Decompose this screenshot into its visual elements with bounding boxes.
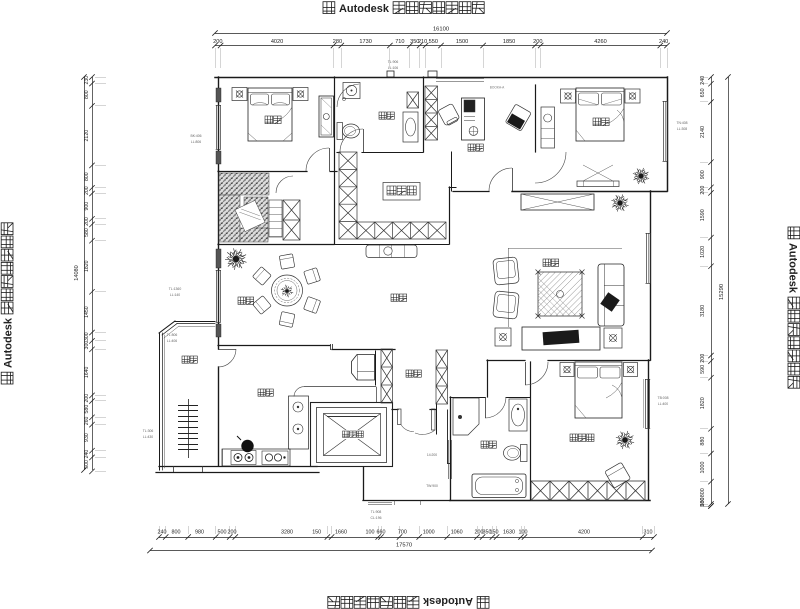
svg-text:200: 200 <box>700 186 706 195</box>
svg-text:TL:906: TL:906 <box>388 60 399 64</box>
svg-text:Autodesk: Autodesk <box>339 3 390 15</box>
svg-text:2120: 2120 <box>84 130 90 142</box>
svg-text:1000: 1000 <box>700 462 706 474</box>
svg-text:4200: 4200 <box>578 530 590 536</box>
svg-text:550: 550 <box>429 39 438 45</box>
svg-text:LL:406: LL:406 <box>167 339 177 343</box>
svg-text:1820: 1820 <box>700 397 706 409</box>
svg-text:800: 800 <box>172 530 181 536</box>
svg-text:LL:140: LL:140 <box>170 293 180 297</box>
svg-text:1060: 1060 <box>451 530 463 536</box>
svg-text:200: 200 <box>533 39 542 45</box>
svg-text:CL:196: CL:196 <box>371 516 382 520</box>
svg-text:LL:106: LL:106 <box>388 66 398 70</box>
svg-text:100: 100 <box>519 530 528 536</box>
svg-text:TW:900: TW:900 <box>426 484 438 488</box>
svg-text:3280: 3280 <box>281 530 293 536</box>
svg-text:580: 580 <box>700 498 706 507</box>
svg-text:800: 800 <box>84 172 90 181</box>
svg-text:580: 580 <box>84 228 90 237</box>
svg-text:2140: 2140 <box>700 126 706 138</box>
svg-text:LL:806: LL:806 <box>191 140 201 144</box>
svg-text:200: 200 <box>700 354 706 363</box>
svg-text:Autodesk: Autodesk <box>787 243 799 294</box>
svg-text:800: 800 <box>84 90 90 99</box>
svg-text:TL:806: TL:806 <box>167 333 178 337</box>
svg-text:500: 500 <box>218 530 227 536</box>
svg-text:500: 500 <box>84 460 90 469</box>
svg-text:1590: 1590 <box>700 209 706 221</box>
svg-text:200: 200 <box>228 530 237 536</box>
svg-text:240: 240 <box>158 530 167 536</box>
svg-text:240: 240 <box>84 450 90 459</box>
svg-text:1730: 1730 <box>359 39 371 45</box>
svg-text:LL:400: LL:400 <box>658 402 668 406</box>
svg-text:580: 580 <box>84 405 90 414</box>
svg-text:200: 200 <box>84 394 90 403</box>
svg-text:900: 900 <box>700 170 706 179</box>
svg-text:1820: 1820 <box>84 260 90 272</box>
svg-text:Autodesk: Autodesk <box>422 595 473 607</box>
svg-text:100: 100 <box>366 530 375 536</box>
svg-text:980: 980 <box>195 530 204 536</box>
svg-text:660: 660 <box>377 530 386 536</box>
svg-text:650: 650 <box>700 88 706 97</box>
svg-text:300: 300 <box>84 341 90 350</box>
svg-text:310: 310 <box>644 530 653 536</box>
svg-text:900: 900 <box>84 202 90 211</box>
svg-text:1020: 1020 <box>700 246 706 258</box>
svg-text:210: 210 <box>418 39 427 45</box>
svg-text:LL:430: LL:430 <box>143 435 153 439</box>
svg-text:200: 200 <box>213 39 222 45</box>
svg-text:16100: 16100 <box>433 27 449 33</box>
svg-text:TB:008: TB:008 <box>658 396 669 400</box>
svg-text:880: 880 <box>700 437 706 446</box>
svg-text:710: 710 <box>395 39 404 45</box>
svg-text:930: 930 <box>84 433 90 442</box>
svg-text:15290: 15290 <box>719 284 725 300</box>
svg-text:590: 590 <box>700 365 706 374</box>
svg-text:1660: 1660 <box>335 530 347 536</box>
svg-text:17570: 17570 <box>396 543 412 549</box>
svg-text:14080: 14080 <box>74 265 80 281</box>
svg-text:150: 150 <box>490 530 499 536</box>
svg-text:TL:1360: TL:1360 <box>169 287 182 291</box>
svg-text:200: 200 <box>84 186 90 195</box>
svg-text:200: 200 <box>84 217 90 226</box>
svg-text:300: 300 <box>84 332 90 341</box>
svg-text:Autodesk: Autodesk <box>3 317 15 368</box>
svg-text:230: 230 <box>84 76 90 85</box>
svg-text:14:200: 14:200 <box>427 453 437 457</box>
svg-text:4020: 4020 <box>271 39 283 45</box>
svg-text:1000: 1000 <box>423 530 435 536</box>
svg-text:TN:408: TN:408 <box>676 121 687 125</box>
svg-text:3180: 3180 <box>700 305 706 317</box>
svg-text:1640: 1640 <box>84 366 90 378</box>
svg-text:4260: 4260 <box>594 39 606 45</box>
svg-text:BK:406: BK:406 <box>190 134 201 138</box>
svg-text:TL:306: TL:306 <box>143 429 154 433</box>
svg-text:260: 260 <box>84 416 90 425</box>
svg-text:800: 800 <box>700 488 706 497</box>
svg-text:1500: 1500 <box>456 39 468 45</box>
svg-text:240: 240 <box>659 39 668 45</box>
svg-text:LL:308: LL:308 <box>677 127 687 131</box>
svg-text:240: 240 <box>700 76 706 85</box>
svg-text:150: 150 <box>312 530 321 536</box>
svg-text:1850: 1850 <box>503 39 515 45</box>
svg-text:TL:908: TL:908 <box>371 510 382 514</box>
svg-text:280: 280 <box>333 39 342 45</box>
svg-text:1630: 1630 <box>503 530 515 536</box>
svg-text:700: 700 <box>398 530 407 536</box>
svg-text:BOOKA-A: BOOKA-A <box>490 86 505 90</box>
svg-text:1450: 1450 <box>84 306 90 318</box>
